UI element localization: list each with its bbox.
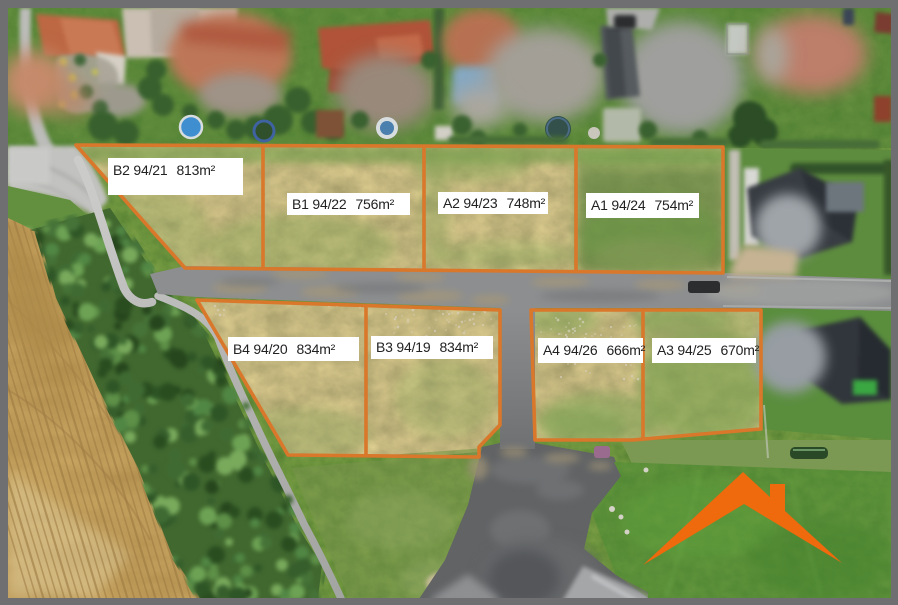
svg-text:A2 94/23748m²: A2 94/23748m² — [443, 195, 546, 211]
svg-text:A3 94/25670m²: A3 94/25670m² — [657, 342, 760, 358]
svg-text:B4 94/20834m²: B4 94/20834m² — [233, 341, 336, 357]
svg-text:A4 94/26666m²: A4 94/26666m² — [543, 342, 646, 358]
svg-text:A1 94/24754m²: A1 94/24754m² — [591, 197, 694, 213]
svg-text:B1 94/22756m²: B1 94/22756m² — [292, 196, 395, 212]
svg-text:B2 94/21813m²: B2 94/21813m² — [113, 162, 216, 178]
svg-text:B3 94/19834m²: B3 94/19834m² — [376, 339, 479, 355]
